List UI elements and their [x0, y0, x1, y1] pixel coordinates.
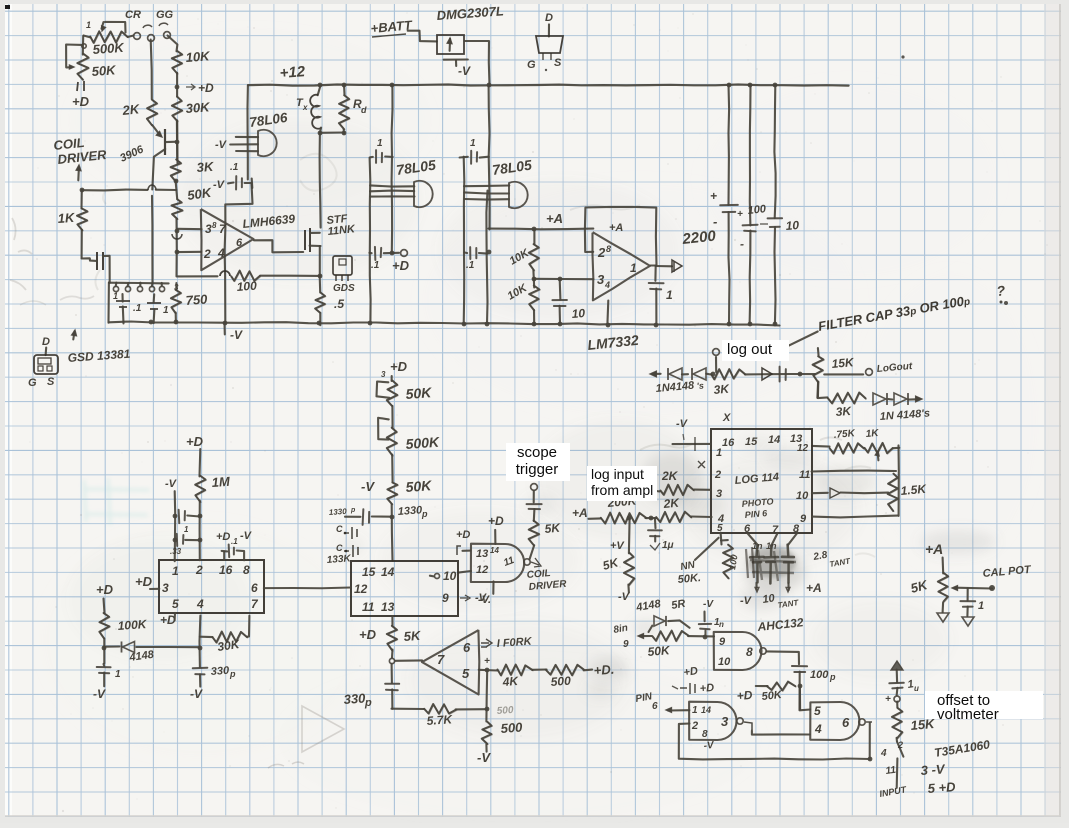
svg-text:+12: +12: [279, 63, 306, 82]
svg-text:15: 15: [362, 565, 376, 579]
svg-text:500: 500: [496, 705, 514, 717]
svg-text:+A: +A: [806, 581, 822, 595]
svg-text:3: 3: [597, 272, 605, 287]
svg-text:d: d: [361, 105, 367, 115]
svg-text:+D: +D: [96, 582, 114, 597]
svg-text:15: 15: [745, 436, 758, 448]
svg-text:G: G: [28, 377, 37, 389]
svg-text:+D: +D: [216, 531, 230, 543]
svg-text:4: 4: [604, 280, 610, 290]
svg-text:COIL: COIL: [526, 568, 551, 581]
svg-text:5.7K: 5.7K: [426, 712, 454, 728]
svg-text:4: 4: [880, 748, 887, 759]
svg-text:6: 6: [236, 237, 243, 249]
svg-text:from ampl: from ampl: [591, 482, 653, 498]
svg-text:1330: 1330: [397, 504, 423, 518]
svg-text:+D: +D: [736, 688, 753, 703]
svg-text:1K: 1K: [57, 210, 76, 226]
svg-text:50K: 50K: [405, 384, 433, 402]
svg-text:5K: 5K: [544, 521, 562, 536]
svg-text:-V: -V: [213, 179, 226, 191]
svg-text:3: 3: [205, 222, 212, 236]
svg-text:C: C: [336, 524, 343, 534]
svg-text:-V: -V: [230, 328, 243, 342]
svg-text:750: 750: [185, 291, 208, 308]
svg-text:+D.: +D.: [593, 662, 615, 678]
svg-text:X: X: [722, 412, 731, 424]
svg-text:+D: +D: [488, 514, 504, 528]
svg-text:6: 6: [652, 701, 658, 712]
svg-text:50K: 50K: [405, 477, 433, 495]
svg-text:x: x: [302, 103, 308, 112]
svg-text:500K: 500K: [92, 40, 126, 57]
svg-text:4: 4: [196, 597, 204, 611]
svg-text:2K: 2K: [662, 496, 681, 511]
svg-text:1: 1: [692, 705, 698, 716]
svg-text:2K: 2K: [661, 469, 679, 483]
svg-text:+D: +D: [359, 627, 377, 642]
svg-text:-V: -V: [676, 418, 689, 430]
svg-text:10K: 10K: [185, 48, 211, 65]
svg-text:+D: +D: [72, 94, 90, 109]
svg-text:+D: +D: [392, 258, 410, 273]
svg-text:4K: 4K: [501, 674, 520, 689]
svg-text:.1: .1: [466, 260, 475, 271]
svg-text:-V: -V: [361, 479, 375, 494]
svg-text:1: 1: [115, 669, 121, 680]
svg-text:133K: 133K: [326, 553, 351, 566]
svg-text:.1: .1: [133, 303, 142, 314]
svg-text:1K: 1K: [865, 428, 879, 440]
svg-text:p: p: [364, 697, 372, 709]
svg-text:-V: -V: [477, 750, 491, 765]
svg-text:13: 13: [381, 600, 395, 614]
svg-text:+D: +D: [186, 434, 204, 449]
svg-text:D: D: [545, 12, 553, 24]
svg-text:3K: 3K: [713, 382, 731, 397]
svg-text:5: 5: [814, 704, 821, 718]
svg-text:D: D: [42, 336, 50, 348]
svg-text:S: S: [47, 376, 55, 388]
svg-text:9: 9: [623, 639, 629, 650]
svg-text:1: 1: [163, 305, 169, 316]
svg-text:8: 8: [746, 645, 753, 659]
svg-text:30K: 30K: [185, 99, 211, 116]
svg-text:11: 11: [885, 765, 897, 777]
svg-text:1: 1: [377, 138, 383, 149]
svg-text:2: 2: [203, 247, 211, 261]
svg-text:3: 3: [381, 370, 386, 379]
svg-text:3 -V: 3 -V: [920, 761, 946, 778]
svg-text:14: 14: [490, 546, 499, 555]
svg-text:500: 500: [550, 674, 571, 689]
svg-text:9: 9: [442, 591, 449, 605]
svg-text:C: C: [336, 543, 343, 553]
svg-text:p: p: [350, 507, 356, 514]
svg-text:8: 8: [702, 729, 708, 740]
svg-text:1: 1: [113, 291, 118, 301]
svg-text:1: 1: [716, 447, 722, 459]
svg-text:14: 14: [701, 705, 711, 715]
svg-text:3K: 3K: [835, 404, 853, 419]
svg-text:12: 12: [797, 443, 809, 454]
svg-text:10: 10: [785, 218, 800, 233]
svg-text:8: 8: [243, 563, 250, 577]
svg-text:5 +D: 5 +D: [927, 779, 956, 796]
svg-text:.1: .1: [230, 162, 239, 173]
svg-text:2: 2: [714, 469, 721, 481]
svg-text:7: 7: [437, 652, 445, 667]
svg-text:.1: .1: [231, 537, 238, 546]
svg-text:5: 5: [462, 666, 470, 681]
svg-text:9: 9: [800, 513, 807, 525]
svg-text:1: 1: [630, 261, 637, 275]
svg-text:6: 6: [251, 581, 258, 595]
svg-text:+A: +A: [925, 541, 943, 557]
svg-text:+: +: [737, 209, 743, 220]
svg-text:3: 3: [716, 488, 722, 500]
svg-text:100: 100: [747, 203, 767, 217]
svg-text:500K: 500K: [405, 434, 440, 452]
svg-text:8: 8: [606, 244, 611, 254]
svg-text:u: u: [914, 684, 919, 693]
svg-text:50K.: 50K.: [677, 572, 701, 586]
svg-text:.5: .5: [334, 297, 344, 311]
svg-text:S: S: [554, 57, 562, 69]
svg-text:13: 13: [476, 548, 488, 560]
svg-text:8: 8: [212, 221, 217, 230]
svg-text:+D: +D: [456, 529, 470, 541]
svg-text:14: 14: [768, 434, 780, 446]
svg-text:3: 3: [162, 581, 169, 595]
svg-text:-V: -V: [740, 595, 753, 607]
svg-text:GG: GG: [156, 9, 174, 21]
svg-text:+: +: [710, 189, 717, 203]
svg-text:3: 3: [721, 714, 729, 729]
svg-text:5K: 5K: [403, 628, 422, 644]
svg-text:100: 100: [236, 279, 257, 294]
svg-text:.1: .1: [371, 260, 380, 271]
svg-text:.33: .33: [170, 547, 182, 556]
svg-text:2200: 2200: [681, 228, 718, 249]
svg-text:500: 500: [500, 719, 523, 736]
svg-text:+D: +D: [135, 574, 153, 589]
svg-text:1: 1: [184, 525, 189, 534]
svg-text:5R: 5R: [670, 598, 686, 612]
svg-text:16: 16: [219, 563, 233, 577]
svg-text:16: 16: [722, 437, 735, 449]
svg-text:1.5K: 1.5K: [900, 482, 928, 498]
svg-text:1μ: 1μ: [662, 540, 674, 551]
svg-text:-V: -V: [165, 478, 178, 490]
svg-text:log input: log input: [591, 466, 644, 482]
svg-text:9: 9: [719, 636, 726, 648]
svg-text:2: 2: [195, 563, 203, 577]
svg-text:50K: 50K: [761, 689, 783, 703]
svg-text:1: 1: [978, 600, 984, 612]
svg-text:p: p: [229, 669, 236, 679]
svg-text:50K: 50K: [91, 62, 117, 79]
svg-text:15K: 15K: [831, 355, 855, 371]
svg-text:11: 11: [362, 600, 375, 614]
svg-text:10: 10: [571, 306, 586, 321]
svg-text:+A: +A: [546, 211, 563, 226]
svg-text:10: 10: [443, 569, 457, 583]
svg-text:-V: -V: [703, 599, 714, 610]
svg-text:log out: log out: [727, 341, 773, 358]
svg-text:+D: +D: [198, 81, 214, 95]
svg-text:+V: +V: [610, 540, 625, 552]
svg-text:-V.: -V.: [475, 592, 488, 604]
svg-text:scope: scope: [517, 444, 557, 461]
svg-text:-V: -V: [618, 591, 631, 603]
svg-text:'s: 's: [696, 380, 704, 391]
svg-text:6: 6: [463, 640, 471, 655]
svg-text:-V: -V: [458, 64, 471, 78]
svg-text:-V: -V: [93, 687, 106, 701]
svg-text:10: 10: [718, 656, 731, 668]
svg-text:2: 2: [897, 740, 903, 750]
svg-text:+D: +D: [683, 665, 699, 679]
svg-text:4: 4: [217, 246, 225, 260]
svg-text:330: 330: [210, 665, 230, 678]
svg-text:12: 12: [476, 564, 488, 576]
svg-text:1330: 1330: [329, 507, 348, 517]
svg-text:+A: +A: [609, 222, 623, 234]
svg-text:2K: 2K: [121, 101, 142, 118]
svg-text:+D: +D: [699, 682, 714, 695]
svg-text:p: p: [421, 509, 428, 519]
svg-text:100K: 100K: [117, 617, 148, 633]
svg-text:1: 1: [470, 138, 476, 149]
svg-text:+: +: [885, 694, 891, 705]
svg-text:4: 4: [814, 722, 822, 736]
svg-text:3K: 3K: [196, 159, 215, 175]
svg-text:-V: -V: [215, 139, 228, 151]
svg-text:330: 330: [343, 690, 366, 707]
svg-text:11: 11: [799, 469, 810, 481]
svg-text:6: 6: [842, 715, 850, 730]
svg-text:CR: CR: [125, 9, 141, 21]
svg-text:+A: +A: [572, 506, 588, 520]
svg-text:2: 2: [691, 720, 698, 732]
svg-text:+D: +D: [390, 359, 408, 374]
svg-text:100: 100: [810, 669, 829, 681]
svg-text:50K: 50K: [647, 643, 671, 659]
svg-text:14: 14: [381, 565, 395, 579]
svg-text:12: 12: [354, 582, 368, 596]
svg-text:voltmeter: voltmeter: [937, 706, 999, 723]
svg-text:trigger: trigger: [516, 461, 559, 478]
svg-text:PIN 6: PIN 6: [744, 508, 768, 520]
svg-text:-: -: [740, 237, 744, 251]
svg-text:1M: 1M: [211, 474, 231, 490]
svg-text:n: n: [719, 620, 724, 629]
svg-text:1: 1: [172, 564, 179, 578]
svg-text:1: 1: [86, 20, 91, 30]
svg-text:+: +: [484, 656, 490, 667]
svg-text:I F0RK: I F0RK: [496, 636, 533, 650]
svg-text:-V: -V: [240, 530, 253, 542]
svg-text:1: 1: [666, 288, 673, 302]
svg-text:5: 5: [172, 597, 179, 611]
svg-text:2: 2: [597, 245, 606, 260]
svg-text:G: G: [527, 59, 536, 71]
svg-text:10: 10: [796, 490, 809, 502]
svg-text:GDS: GDS: [333, 283, 355, 294]
svg-text:p: p: [829, 672, 836, 682]
svg-text:-V: -V: [190, 687, 203, 701]
